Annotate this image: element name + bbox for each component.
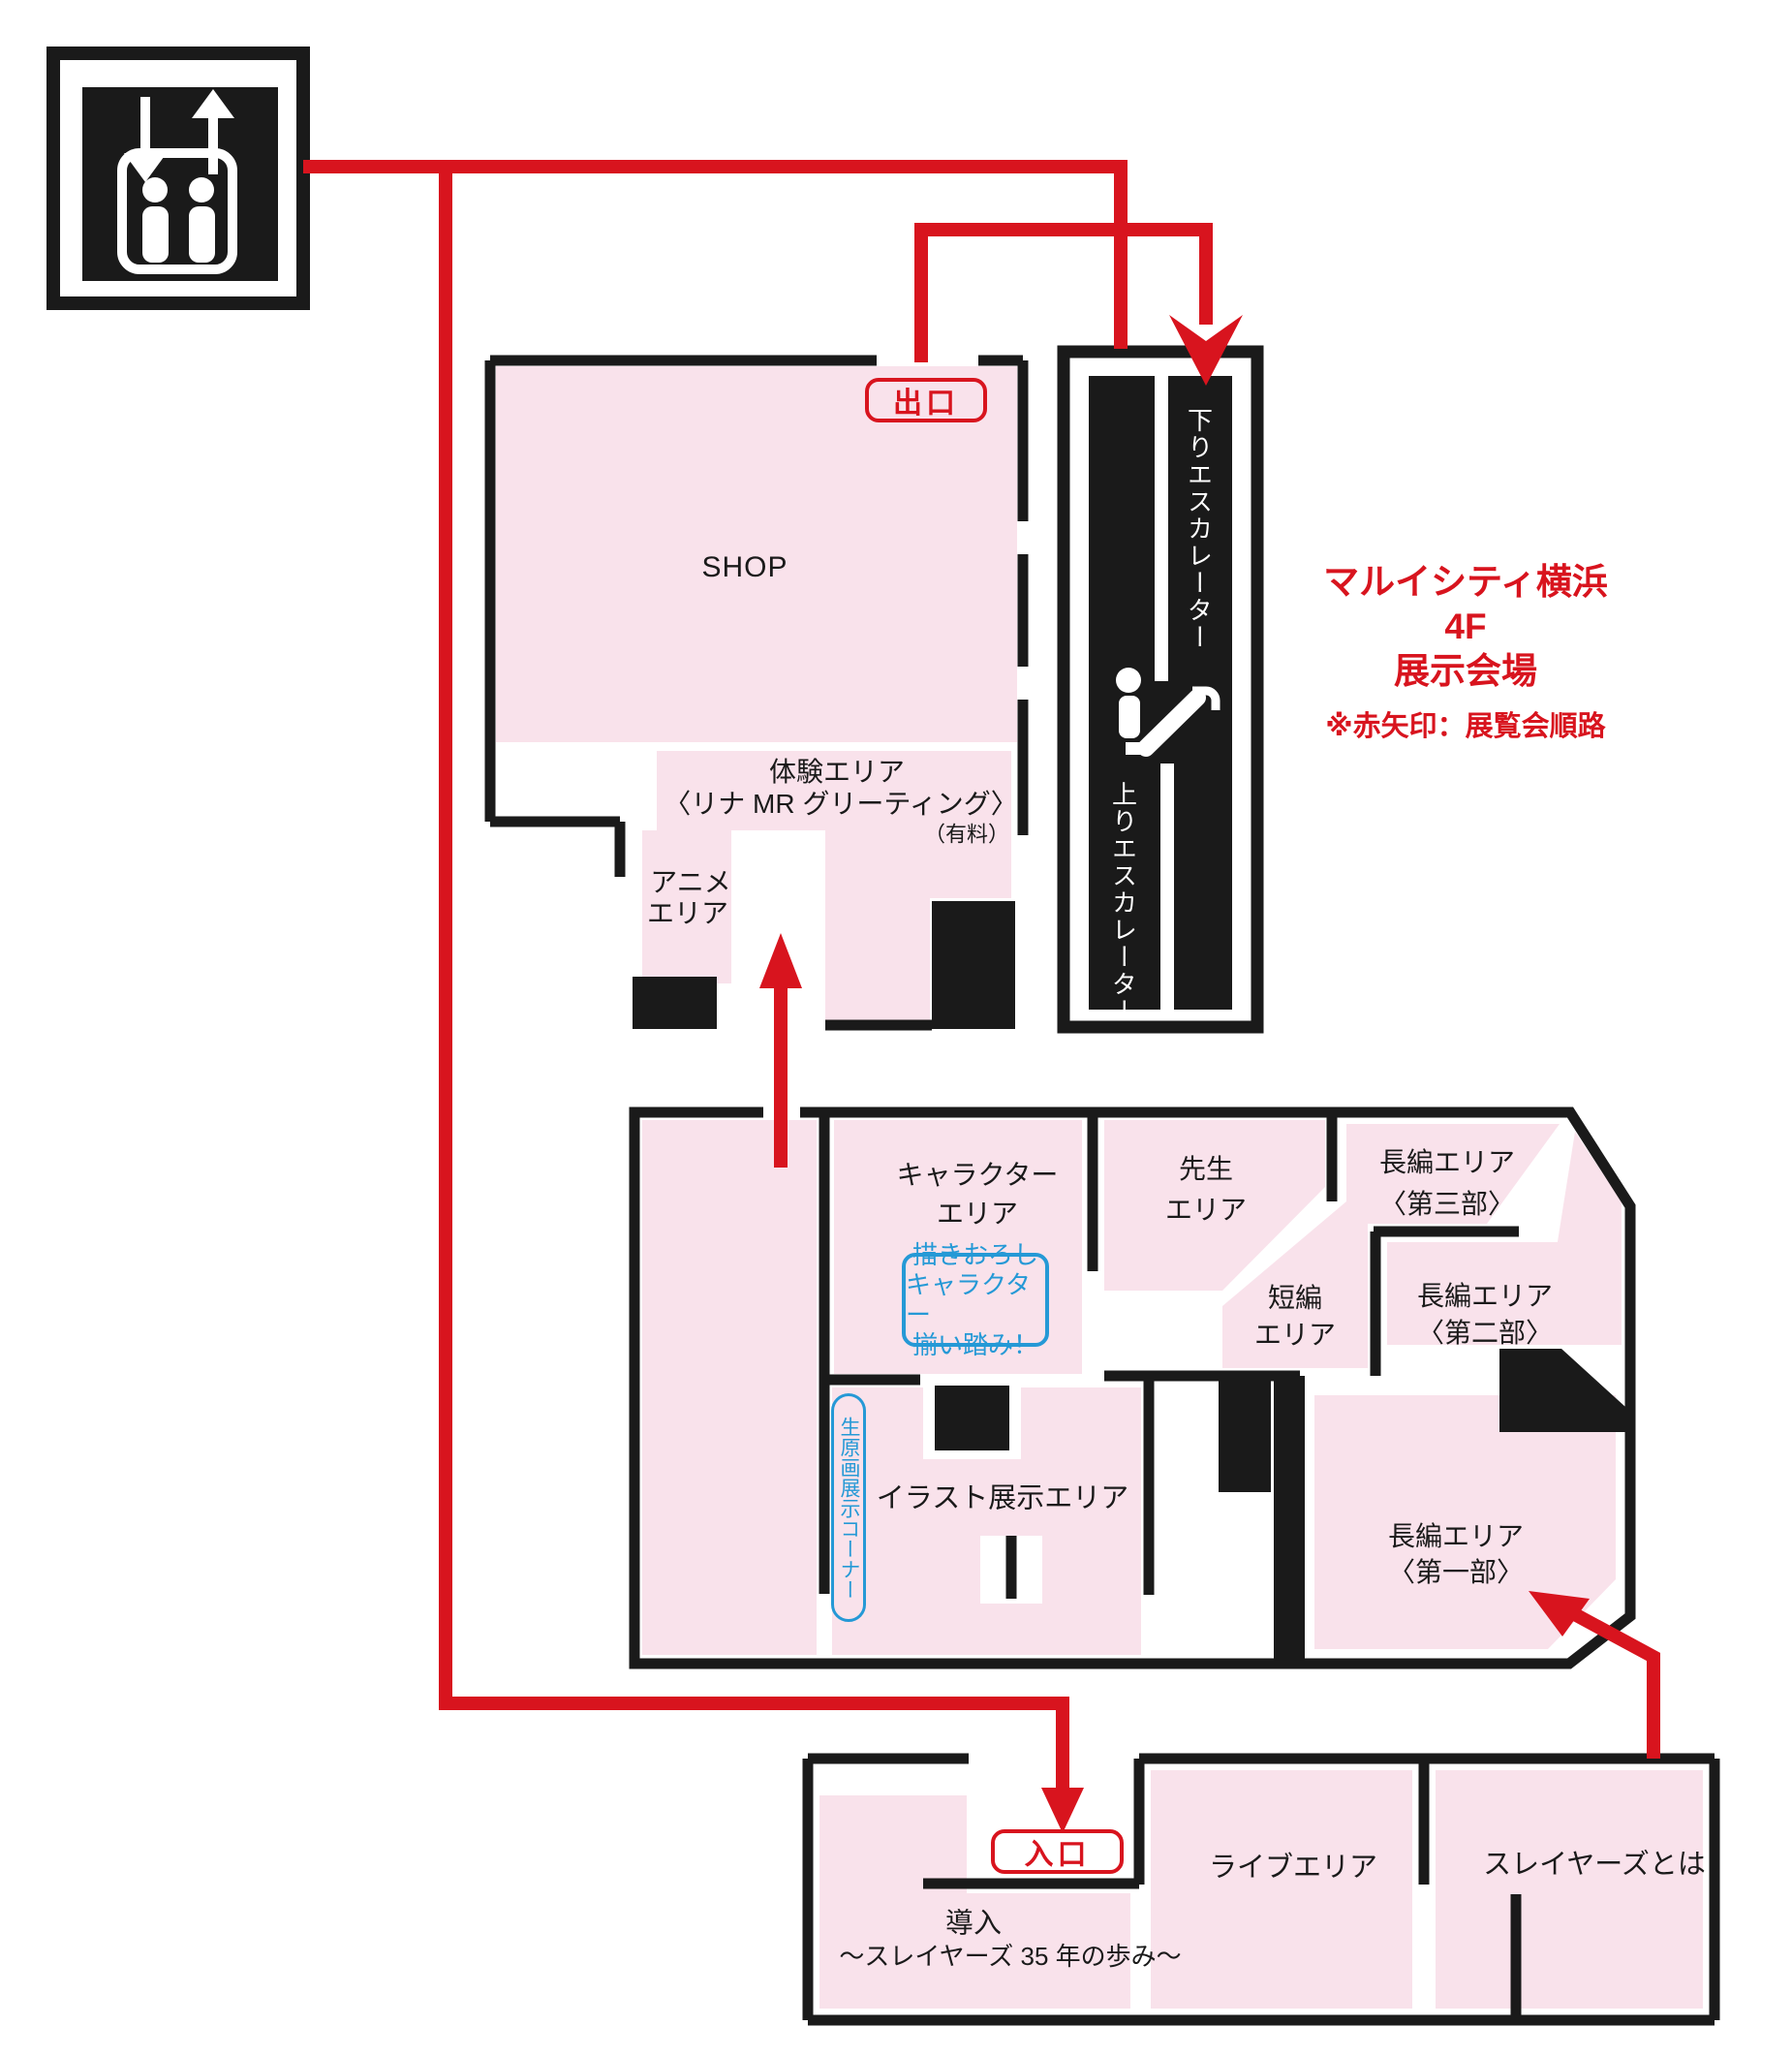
tanpen-label-line2: エリア (1254, 1320, 1336, 1351)
character-label-line1: キャラクター (897, 1160, 1059, 1191)
donyu-label-line1: 導入 (945, 1908, 1002, 1940)
escalator-up-label: 上りエスカレーター (1106, 781, 1142, 1025)
shop-label: SHOP (701, 551, 788, 585)
map-title-line1: マルイシティ横浜 4F (1303, 560, 1629, 649)
draw-characters-callout: 描きおろし キャラクター 揃い踏み！ (902, 1253, 1049, 1347)
chohen3-label-line1: 長編エリア (1379, 1147, 1515, 1178)
taiken-area-mid (825, 830, 930, 1025)
exit-badge-label: 出口 (893, 379, 959, 421)
donyu-area (819, 1795, 1130, 2009)
draw-callout-line1: 描きおろし (912, 1240, 1038, 1270)
tanpen-label-line1: 短編 (1268, 1283, 1322, 1314)
character-label-line2: エリア (937, 1199, 1018, 1230)
genga-corner-label: 生原画展示コーナー (834, 1417, 863, 1600)
sensei-label-line2: エリア (1165, 1195, 1247, 1226)
slayers-area (1436, 1770, 1703, 2009)
map-title-note: ※赤矢印：展覧会順路 (1303, 703, 1629, 744)
donyu-label-line2: ～スレイヤーズ 35 年の歩み～ (839, 1943, 1181, 1972)
draw-callout-line2: キャラクター (906, 1270, 1045, 1330)
live-area (1151, 1770, 1412, 2009)
taiken-label-line1: 体験エリア (769, 757, 905, 788)
map-title: マルイシティ横浜 4F 展示会場 ※赤矢印：展覧会順路 (1303, 560, 1629, 744)
route-to-part1 (1569, 1611, 1653, 1759)
slayers-label: スレイヤーズとは (1483, 1849, 1706, 1881)
chohen2-label-line2: 〈第二部〉 (1417, 1318, 1553, 1349)
taiken-label-line2: 〈リナ MR グリーティング〉 (664, 789, 1017, 820)
live-label: ライブエリア (1209, 1852, 1377, 1884)
elevator-icon (53, 53, 303, 303)
anime-label-line1: アニメ (650, 867, 730, 898)
map-title-line2: 展示会場 (1303, 649, 1629, 694)
escalator-block (1064, 352, 1257, 1027)
sensei-label-line1: 先生 (1179, 1154, 1233, 1185)
floor-map: SHOP 体験エリア 〈リナ MR グリーティング〉 （有料） アニメ エリア … (0, 0, 1792, 2057)
floor-plan-drawing (0, 0, 1792, 2057)
genga-corner-callout: 生原画展示コーナー (831, 1393, 866, 1622)
escalator-down-label: 下りエスカレーター (1182, 407, 1218, 651)
chohen3-label-line2: 〈第三部〉 (1379, 1189, 1515, 1220)
illust-label: イラスト展示エリア (877, 1482, 1128, 1514)
exit-badge: 出口 (865, 378, 987, 422)
route-top (303, 167, 1121, 349)
arrowhead-entrance (1041, 1788, 1084, 1833)
draw-callout-line3: 揃い踏み！ (912, 1330, 1038, 1360)
entrance-badge-label: 入口 (1025, 1830, 1091, 1873)
arrowhead-corridor (759, 933, 802, 988)
anime-label-line2: エリア (647, 898, 728, 929)
chohen2-label-line1: 長編エリア (1417, 1281, 1553, 1312)
route-exit-to-escalator (921, 230, 1206, 362)
chohen1-label-line1: 長編エリア (1388, 1521, 1524, 1552)
taiken-fee-label: （有料） (924, 822, 1009, 846)
entrance-badge: 入口 (991, 1829, 1124, 1874)
chohen1-label-line2: 〈第一部〉 (1388, 1557, 1524, 1588)
left-column-area (642, 1120, 817, 1655)
